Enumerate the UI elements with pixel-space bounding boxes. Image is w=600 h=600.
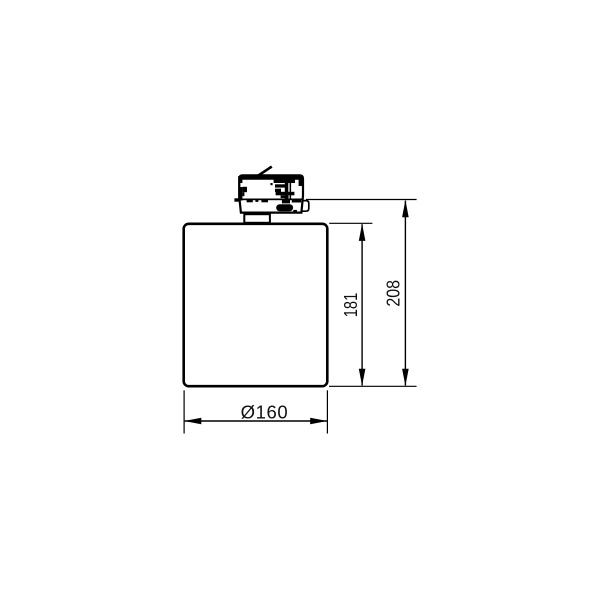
svg-text:181: 181	[340, 293, 361, 318]
svg-text:Ø160: Ø160	[241, 401, 289, 422]
svg-text:208: 208	[383, 280, 404, 307]
